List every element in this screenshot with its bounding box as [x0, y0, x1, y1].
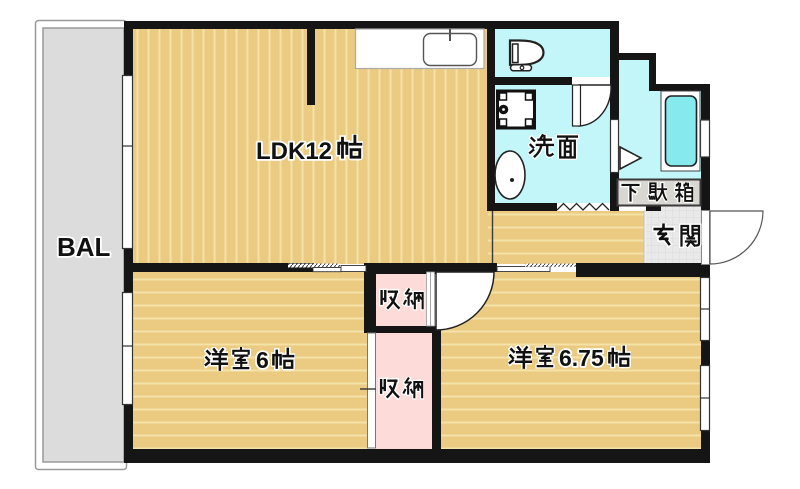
svg-text:6.75: 6.75: [559, 345, 604, 371]
svg-text:BAL: BAL: [57, 232, 111, 262]
svg-text:6: 6: [256, 347, 269, 373]
svg-text:LDK12: LDK12: [256, 138, 332, 165]
